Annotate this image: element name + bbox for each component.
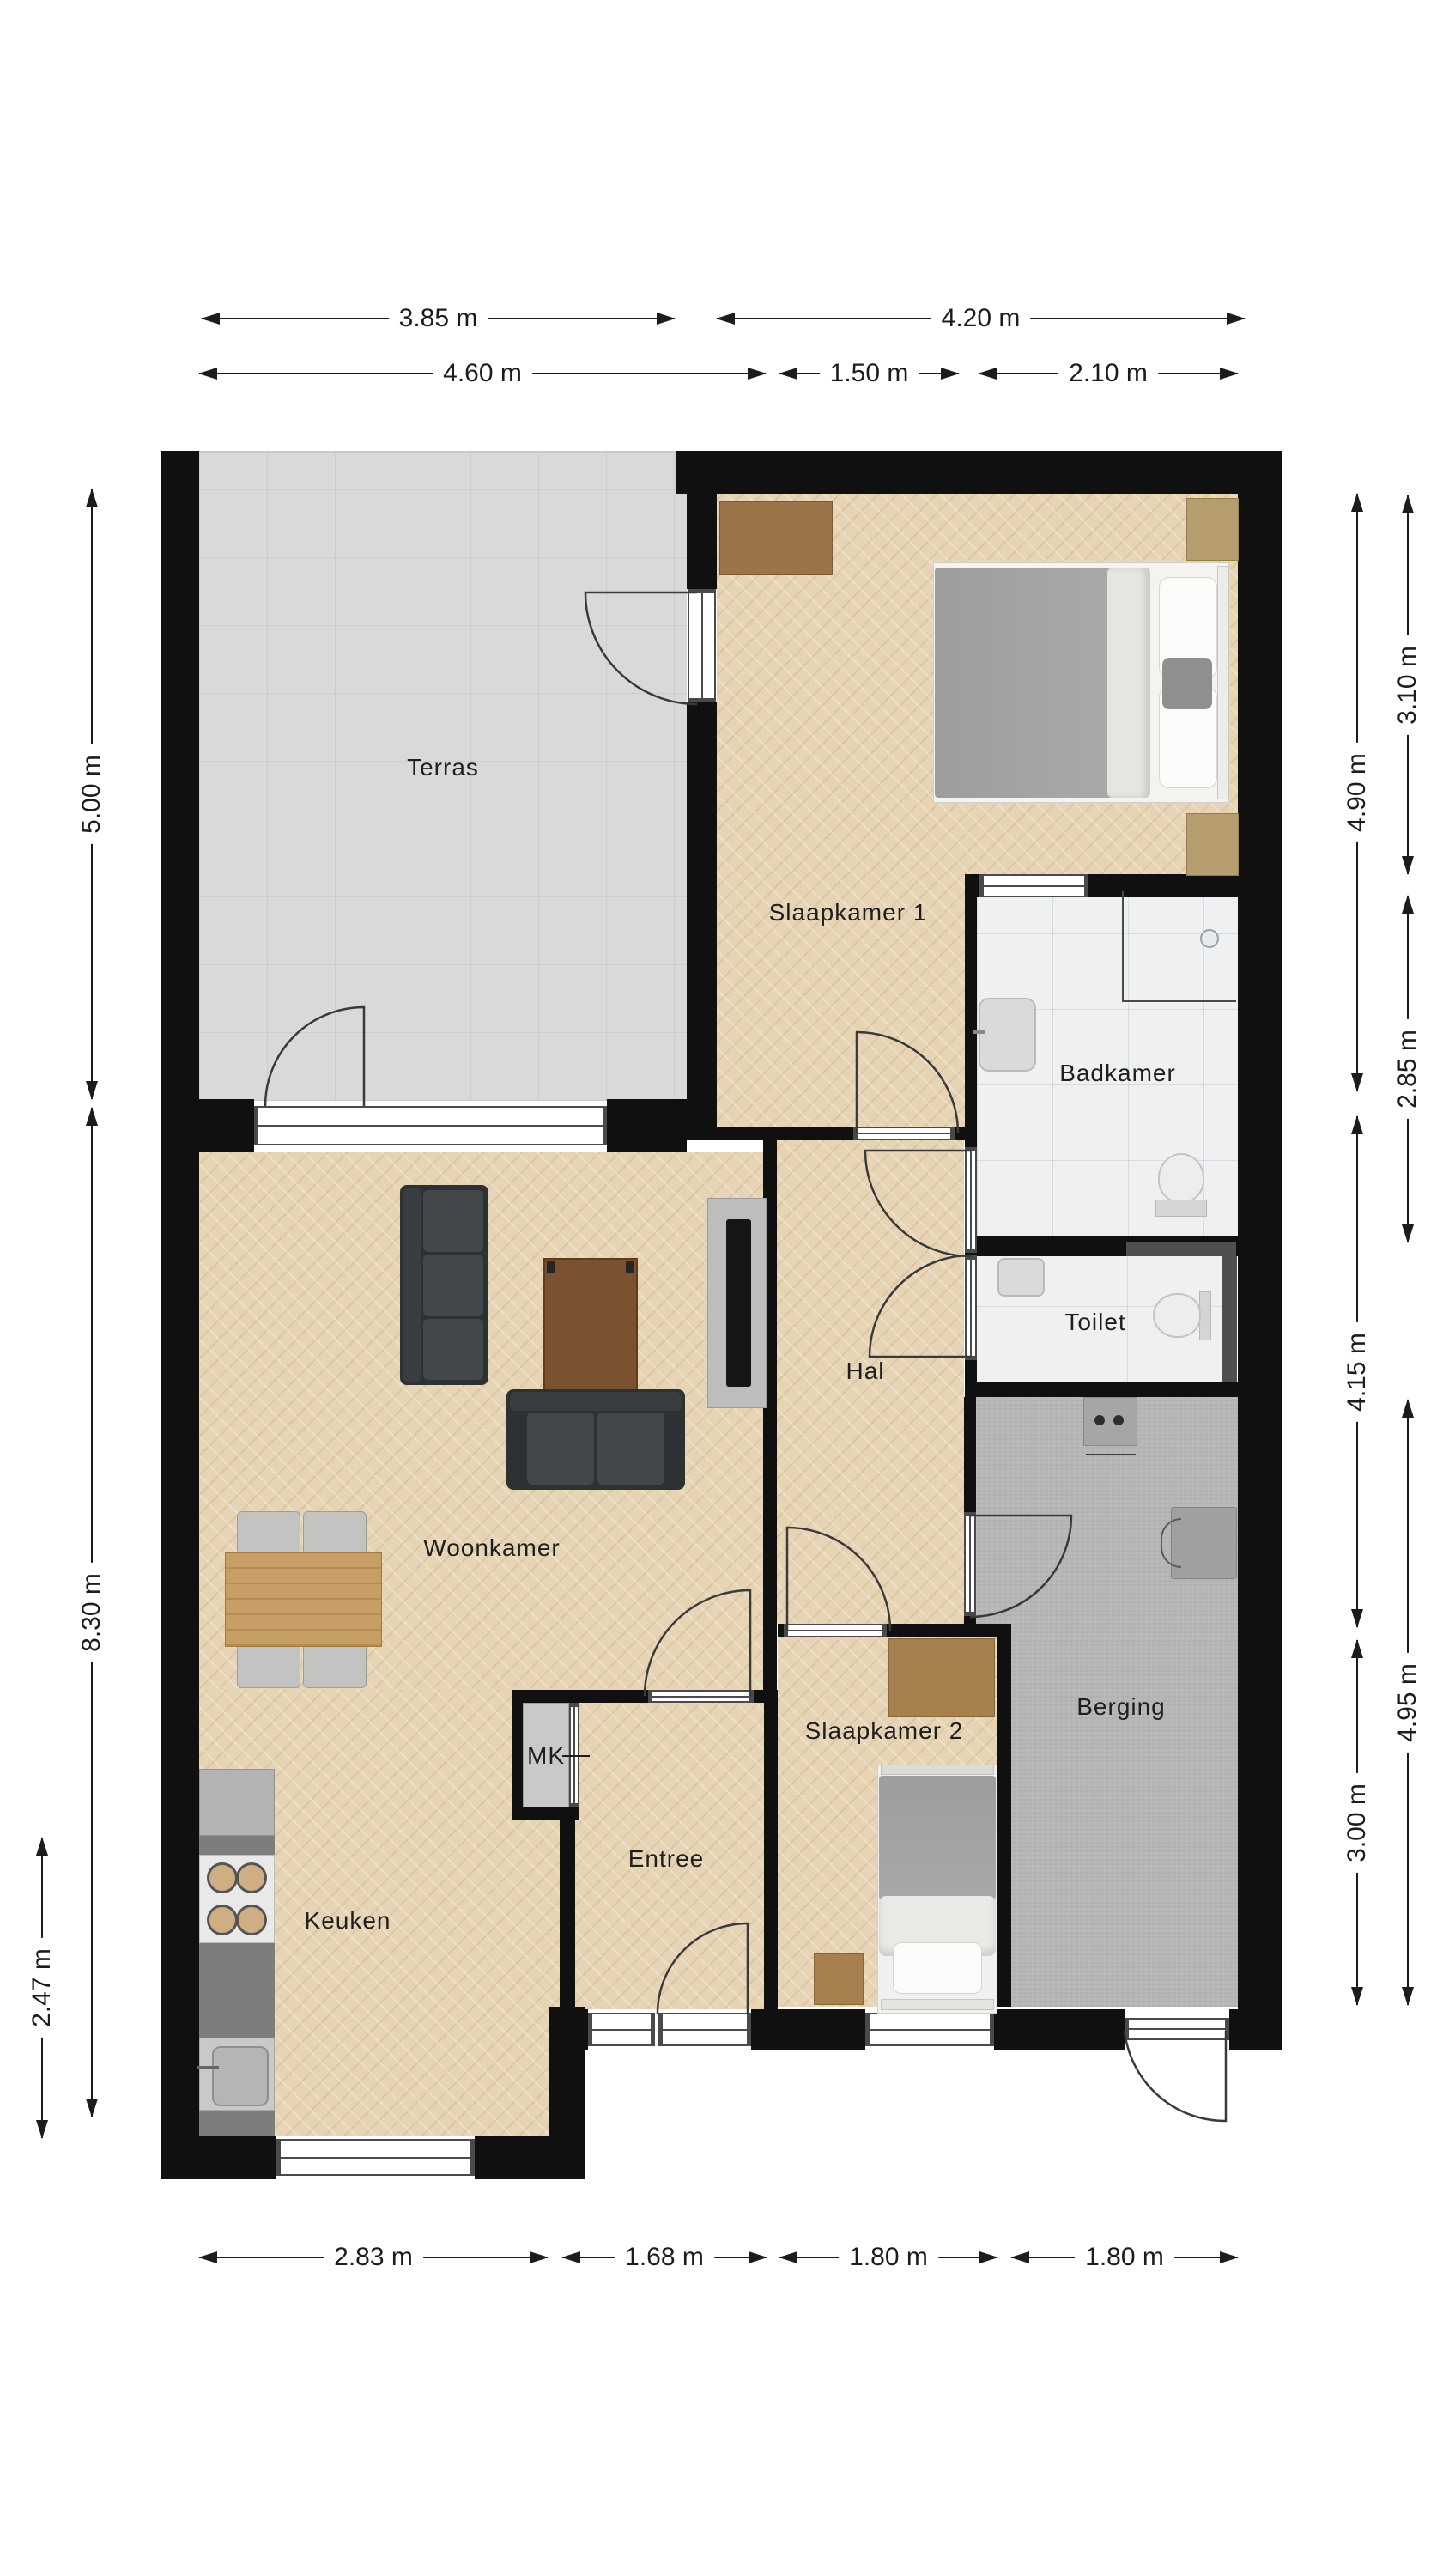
- dim-bottom-slk2: 1.80 m: [779, 2257, 997, 2258]
- arc-hal-berging: [970, 1516, 1071, 1617]
- dim-top-badkamer: 2.10 m: [979, 373, 1238, 374]
- dim-bottom-entree: 1.68 m: [562, 2257, 767, 2258]
- label-slaapkamer2: Slaapkamer 2: [805, 1717, 964, 1745]
- label-entree: Entree: [628, 1845, 705, 1873]
- dim-left-keuken: 2.47 m: [41, 1838, 43, 2138]
- dim-right-slk2: 3.00 m: [1356, 1640, 1358, 2005]
- dim-left-woonkamer: 8.30 m: [91, 1108, 93, 2117]
- label-toilet: Toilet: [1064, 1309, 1125, 1336]
- dim-right-slk1-part: 3.10 m: [1407, 495, 1409, 874]
- label-hal: Hal: [846, 1358, 884, 1385]
- arc-berging-out: [1125, 2031, 1226, 2121]
- dim-top-right: 4.20 m: [717, 318, 1245, 319]
- arc-hal-slk2: [787, 1528, 890, 1631]
- dim-right-badkamer: 2.85 m: [1407, 896, 1409, 1242]
- label-keuken: Keuken: [305, 1907, 391, 1935]
- floorplan-canvas: Terras Slaapkamer 1 Badkamer Toilet Hal …: [0, 0, 1449, 2576]
- arc-hal-toilet: [870, 1255, 971, 1357]
- dim-top-woonkamer: 4.60 m: [199, 373, 766, 374]
- dim-top-terras: 3.85 m: [202, 318, 675, 319]
- dim-right-berging: 4.95 m: [1407, 1400, 1409, 2005]
- label-woonkamer: Woonkamer: [423, 1534, 560, 1562]
- dim-left-terras: 5.00 m: [91, 489, 93, 1099]
- dim-right-slk1: 4.90 m: [1356, 494, 1358, 1091]
- label-badkamer: Badkamer: [1059, 1060, 1176, 1087]
- label-slaapkamer1: Slaapkamer 1: [769, 899, 928, 927]
- arc-woonk-entree: [645, 1590, 750, 1696]
- dim-bottom-keuken: 2.83 m: [199, 2257, 548, 2258]
- arc-front-door: [658, 1923, 748, 2014]
- dim-right-hal: 4.15 m: [1356, 1116, 1358, 1627]
- label-mk: MK: [527, 1742, 565, 1770]
- label-berging: Berging: [1076, 1693, 1166, 1721]
- mk-leader-line: [562, 1755, 590, 1757]
- dim-top-hal: 1.50 m: [779, 373, 959, 374]
- arc-terras-slider: [265, 1007, 364, 1106]
- dim-bottom-berging: 1.80 m: [1011, 2257, 1238, 2258]
- label-terras: Terras: [407, 754, 479, 781]
- arc-terras-door: [585, 592, 697, 704]
- door-arcs: [0, 0, 1449, 2576]
- arc-slk1-hal: [857, 1032, 958, 1133]
- arc-hal-badkamer: [865, 1151, 971, 1256]
